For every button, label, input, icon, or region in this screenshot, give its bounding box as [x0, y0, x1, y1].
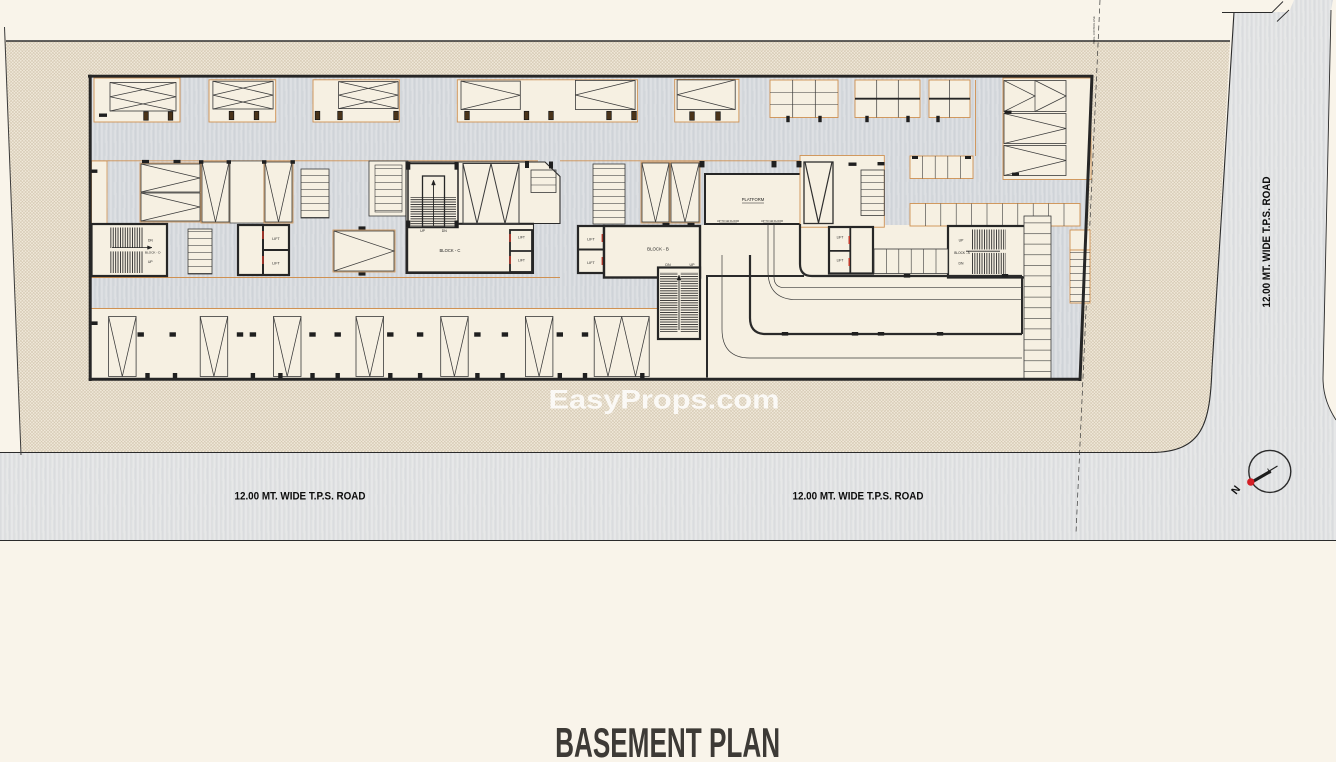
svg-text:EasyProps.com: EasyProps.com: [549, 385, 780, 415]
svg-text:PLATFORM: PLATFORM: [742, 197, 765, 202]
svg-text:DN: DN: [959, 262, 964, 266]
svg-text:BLOCK - A: BLOCK - A: [954, 251, 970, 255]
svg-text:BLOCK - C: BLOCK - C: [440, 248, 461, 253]
svg-text:LIFT: LIFT: [837, 236, 844, 240]
svg-text:BLDG. CONTROL LINE: BLDG. CONTROL LINE: [1092, 16, 1096, 44]
svg-text:UP: UP: [959, 239, 964, 243]
svg-text:12.00 MT. WIDE T.P.S. ROAD: 12.00 MT. WIDE T.P.S. ROAD: [1261, 177, 1273, 308]
svg-text:LIFT: LIFT: [587, 238, 595, 242]
svg-text:12.00 MT. WIDE T.P.S. ROAD: 12.00 MT. WIDE T.P.S. ROAD: [235, 491, 366, 503]
svg-text:LIFT: LIFT: [518, 259, 525, 263]
svg-text:LIFT: LIFT: [272, 237, 280, 241]
svg-text:UP: UP: [148, 260, 153, 264]
svg-text:BASEMENT PLAN: BASEMENT PLAN: [555, 719, 780, 762]
svg-text:LIFT: LIFT: [837, 259, 844, 263]
svg-text:BLOCK - B: BLOCK - B: [647, 247, 669, 252]
svg-text:LIFT: LIFT: [272, 262, 280, 266]
svg-text:DN: DN: [665, 263, 671, 267]
svg-text:LIFT: LIFT: [587, 261, 595, 265]
svg-text:DN: DN: [442, 229, 448, 233]
svg-text:LIFT: LIFT: [518, 236, 525, 240]
svg-text:DN: DN: [148, 239, 153, 243]
svg-text:UP TO GR.FLOOR: UP TO GR.FLOOR: [761, 219, 783, 223]
svg-text:UP: UP: [690, 263, 696, 267]
svg-text:UP TO GR.FLOOR: UP TO GR.FLOOR: [717, 219, 739, 223]
svg-text:UP: UP: [420, 229, 426, 233]
svg-text:12.00 MT. WIDE T.P.S. ROAD: 12.00 MT. WIDE T.P.S. ROAD: [793, 491, 924, 503]
svg-text:BLOCK - D: BLOCK - D: [145, 250, 161, 254]
